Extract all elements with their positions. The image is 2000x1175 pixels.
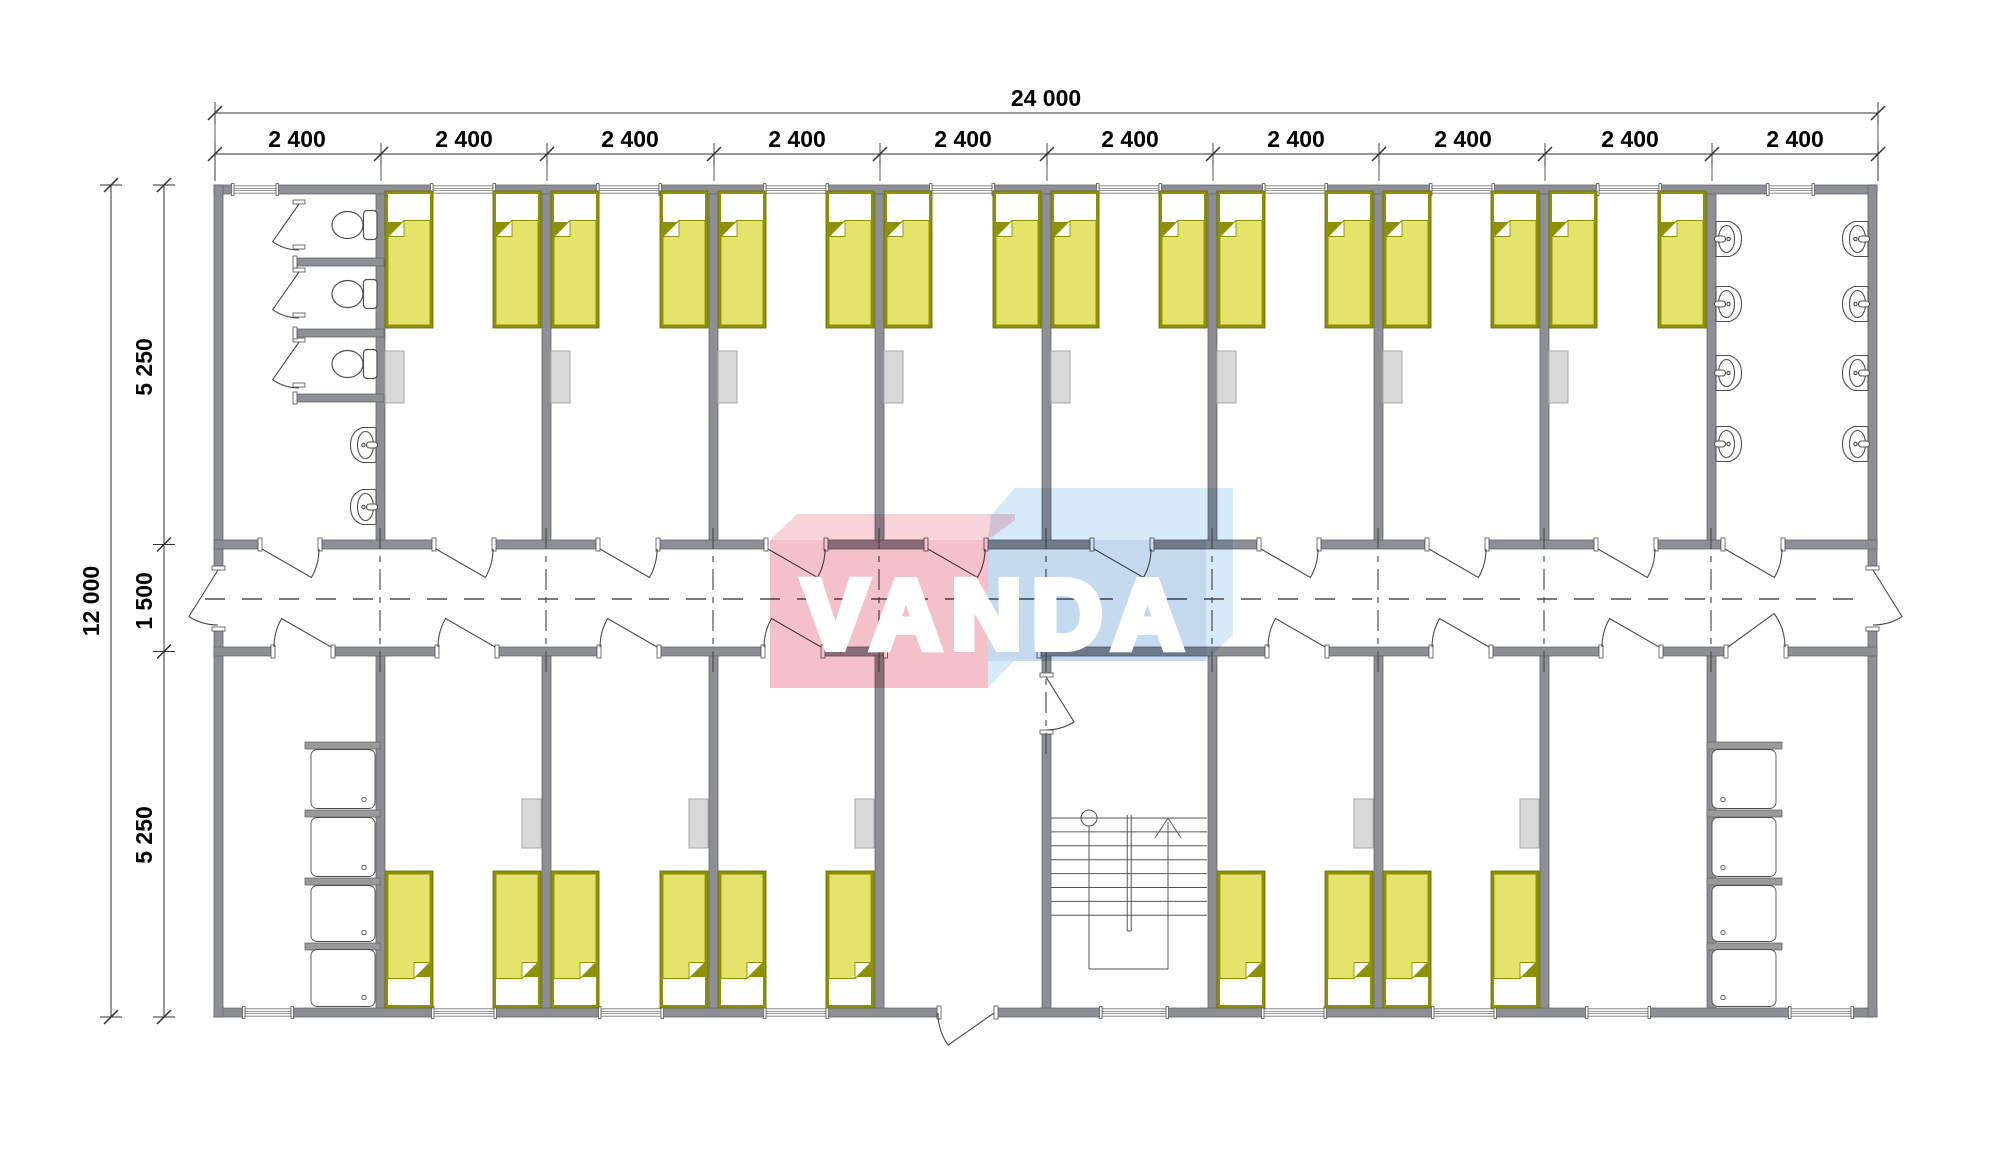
svg-text:2 400: 2 400	[268, 126, 326, 152]
svg-text:2 400: 2 400	[1601, 126, 1659, 152]
svg-text:24 000: 24 000	[1011, 85, 1081, 111]
svg-text:2 400: 2 400	[1101, 126, 1159, 152]
svg-text:2 400: 2 400	[1434, 126, 1492, 152]
svg-text:2 400: 2 400	[435, 126, 493, 152]
svg-text:5 250: 5 250	[131, 338, 157, 396]
svg-text:2 400: 2 400	[601, 126, 659, 152]
svg-text:VANDA: VANDA	[803, 560, 1193, 669]
svg-text:2 400: 2 400	[1766, 126, 1824, 152]
svg-text:2 400: 2 400	[768, 126, 826, 152]
svg-text:2 400: 2 400	[934, 126, 992, 152]
svg-text:1 500: 1 500	[131, 572, 157, 630]
svg-text:2 400: 2 400	[1267, 126, 1325, 152]
svg-text:12 000: 12 000	[78, 566, 104, 636]
svg-text:5 250: 5 250	[131, 806, 157, 864]
